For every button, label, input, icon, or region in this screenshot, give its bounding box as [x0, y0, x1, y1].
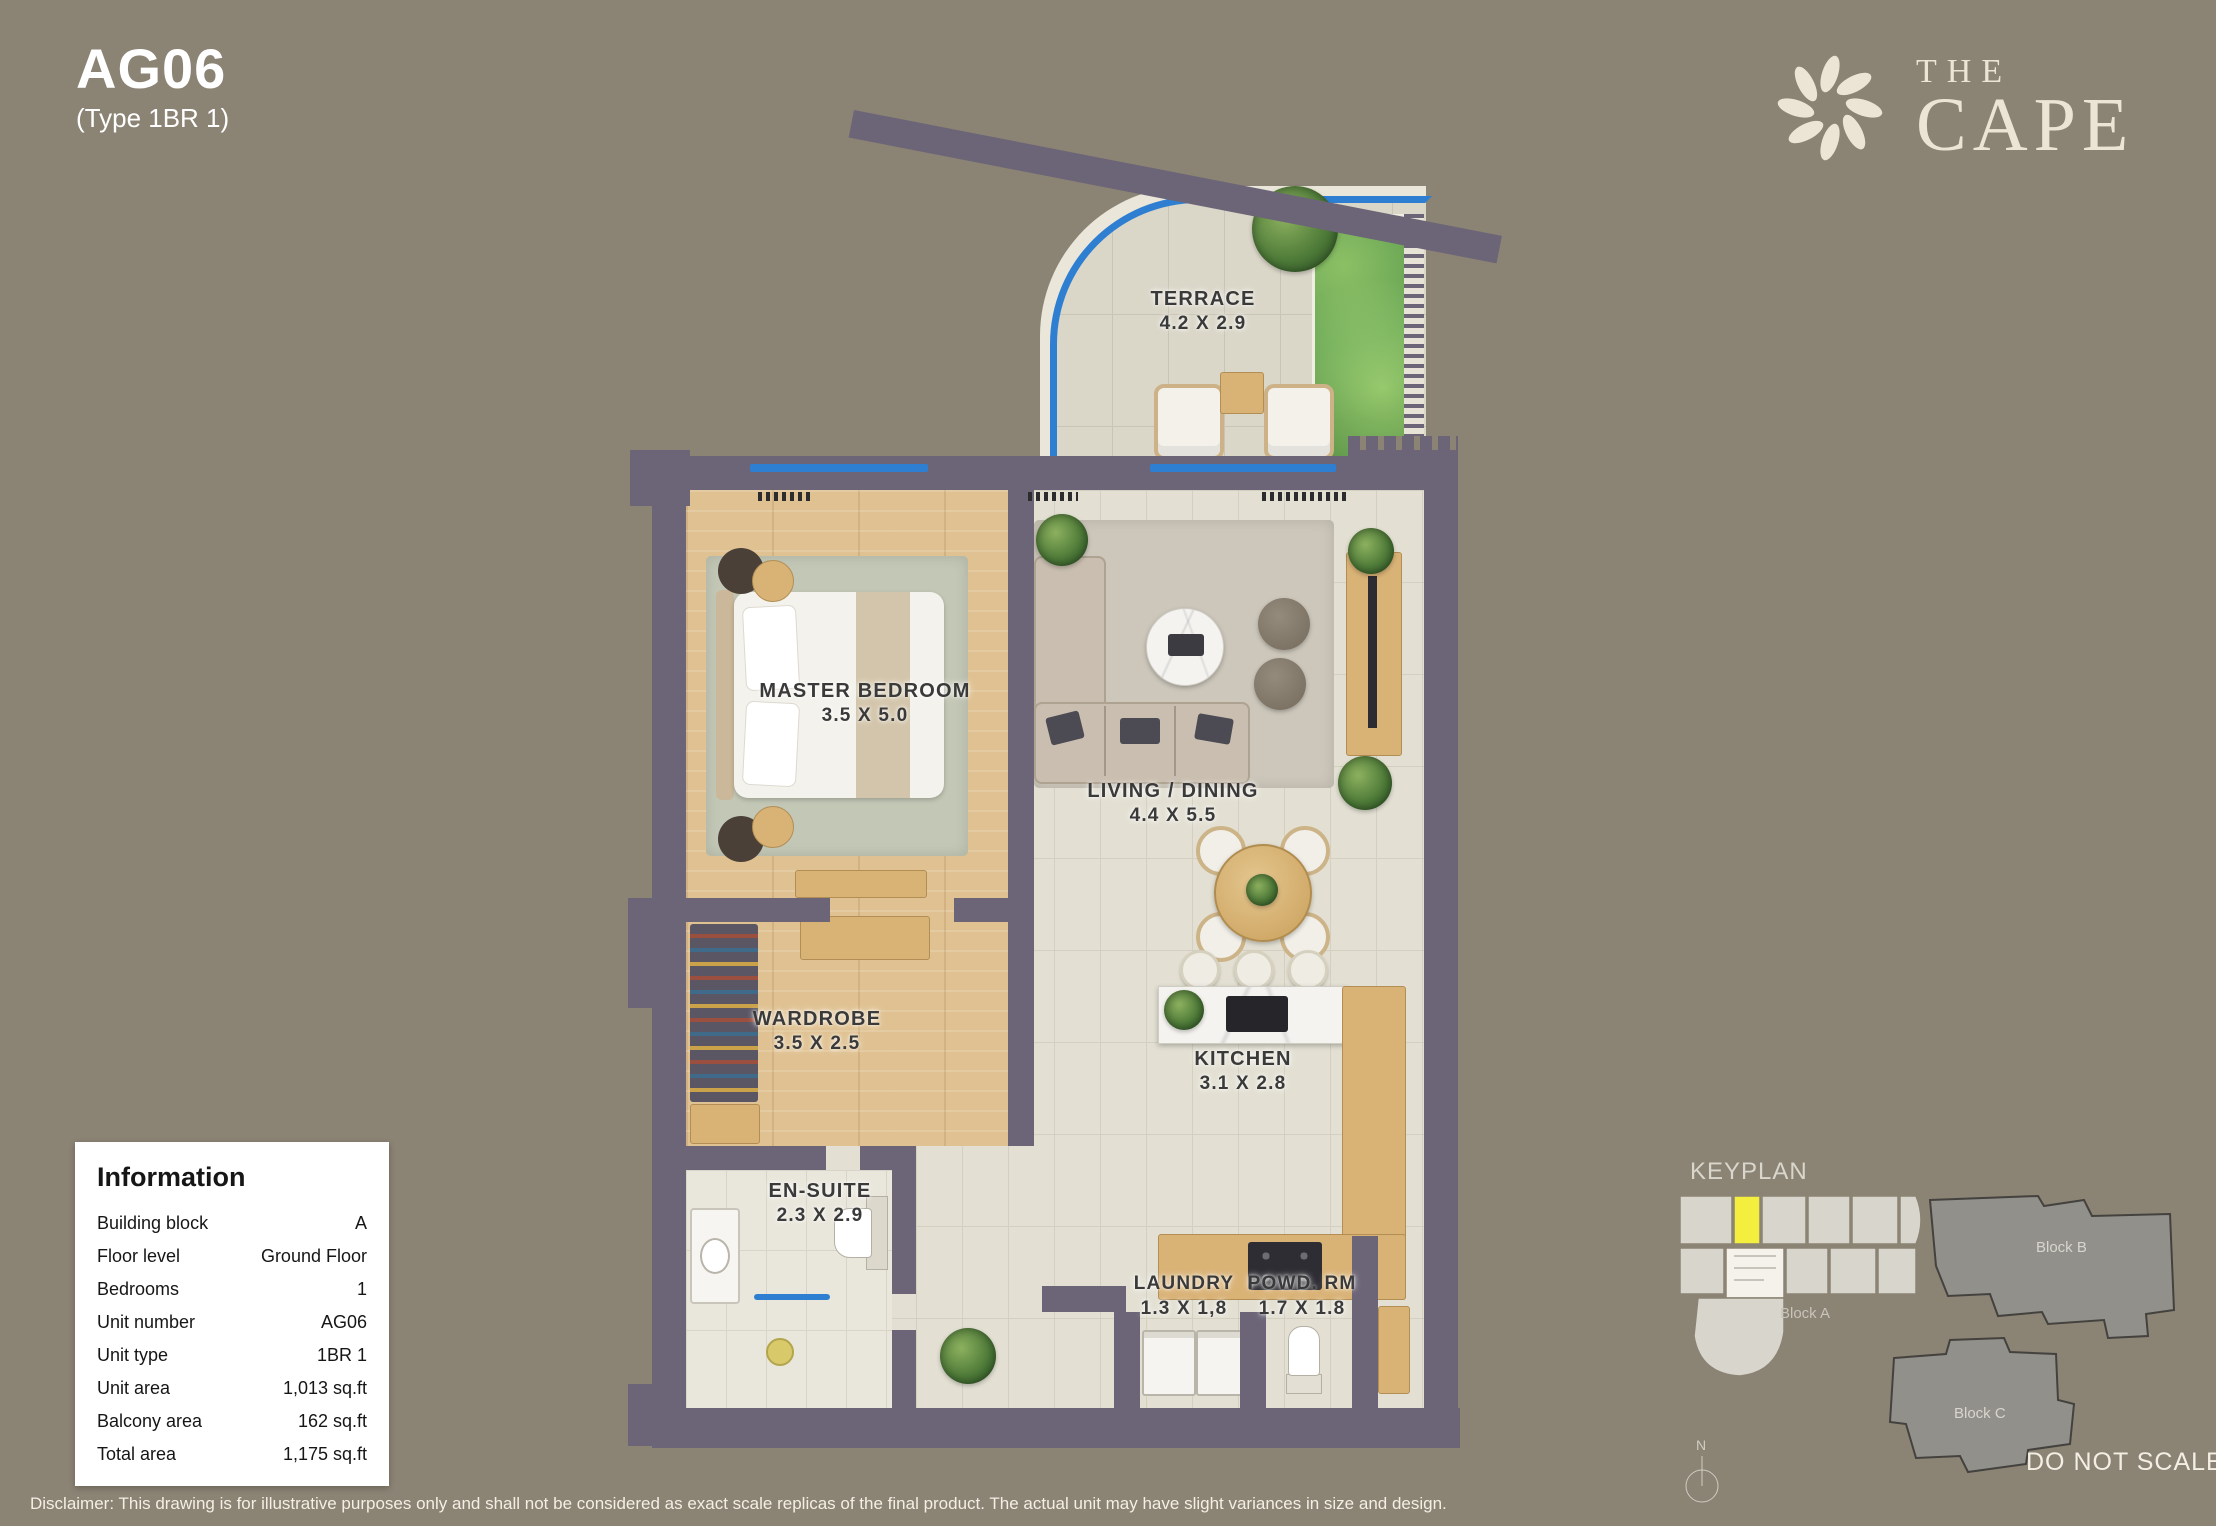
wall-laundry-powder [1240, 1312, 1266, 1408]
info-value: 162 sq.ft [298, 1405, 367, 1438]
room-name: WARDROBE [722, 1006, 912, 1032]
shower-glass [754, 1294, 830, 1300]
disclaimer-text: Disclaimer: This drawing is for illustra… [30, 1494, 1570, 1514]
info-label: Building block [97, 1207, 208, 1240]
info-label: Floor level [97, 1240, 180, 1273]
shower-head [766, 1338, 794, 1366]
room-dims: 3.1 X 2.8 [1148, 1072, 1338, 1097]
wall-bottom [652, 1408, 1460, 1448]
sofa-chaise [1034, 556, 1106, 716]
wall-ensuite-top [860, 1146, 916, 1170]
room-label-master-bedroom: MASTER BEDROOM 3.5 X 5.0 [750, 678, 980, 729]
highlighted-unit [1734, 1196, 1760, 1244]
wall-powder-right [1352, 1236, 1378, 1408]
ottoman [1254, 658, 1306, 710]
north-compass [1686, 1456, 1718, 1502]
hallway-plant [940, 1328, 996, 1384]
console-plant [1348, 528, 1394, 574]
info-row-balcony-area: Balcony area 162 sq.ft [97, 1405, 367, 1438]
bedroom-window [750, 464, 928, 472]
room-dims: 3.5 X 5.0 [750, 704, 980, 729]
wall-top [652, 456, 1458, 490]
room-dims: 4.4 X 5.5 [1058, 804, 1288, 829]
ottoman [1258, 598, 1310, 650]
ac-vent [758, 492, 814, 501]
wall-laundry-left [1114, 1312, 1140, 1408]
info-row-building-block: Building block A [97, 1207, 367, 1240]
wall-ensuite-top [686, 1146, 826, 1170]
bar-stool [1234, 950, 1274, 990]
room-label-ensuite: EN-SUITE 2.3 X 2.9 [730, 1178, 910, 1229]
info-value: 1BR 1 [317, 1339, 367, 1372]
compass-n-label: N [1696, 1437, 1706, 1453]
block-a-label: Block A [1780, 1305, 1830, 1322]
living-plant [1036, 514, 1088, 566]
title-block: AG06 (Type 1BR 1) [76, 40, 229, 134]
washing-machine [1142, 1330, 1196, 1396]
living-plant [1338, 756, 1392, 810]
room-dims: 1.7 X 1.8 [1222, 1297, 1382, 1322]
terrace-side-table [1220, 372, 1264, 414]
bar-stool [1288, 950, 1328, 990]
room-dims: 3.5 X 2.5 [722, 1032, 912, 1057]
info-value: AG06 [321, 1306, 367, 1339]
wall-bedroom-wardrobe [954, 898, 1008, 922]
room-name: MASTER BEDROOM [750, 678, 980, 704]
block-b-label: Block B [2036, 1239, 2087, 1256]
bedroom-dresser [795, 870, 927, 898]
keyplan: KEYPLAN Block A [1668, 1140, 2208, 1512]
powder-toilet [1288, 1326, 1320, 1376]
sofa-cushion-line [1104, 706, 1106, 776]
info-label: Unit number [97, 1306, 195, 1339]
info-value: 1,175 sq.ft [283, 1438, 367, 1471]
wall-bedroom-living [1008, 488, 1034, 908]
powder-shelf [1378, 1306, 1410, 1394]
unit-code: AG06 [76, 40, 229, 99]
info-row-floor-level: Floor level Ground Floor [97, 1240, 367, 1273]
info-row-total-area: Total area 1,175 sq.ft [97, 1438, 367, 1471]
info-label: Bedrooms [97, 1273, 179, 1306]
logo-word-cape: CAPE [1916, 89, 2134, 161]
unit-type: (Type 1BR 1) [76, 103, 229, 134]
brand-logo: THE CAPE [1770, 48, 2134, 168]
wall-wardrobe-right [1008, 898, 1034, 1146]
room-name: TERRACE [1108, 286, 1298, 312]
info-value: A [355, 1207, 367, 1240]
wall-bedroom-wardrobe [686, 898, 830, 922]
block-c-label: Block C [1954, 1405, 2006, 1422]
info-row-unit-type: Unit type 1BR 1 [97, 1339, 367, 1372]
ac-vent [1262, 492, 1346, 501]
room-dims: 4.2 X 2.9 [1108, 312, 1298, 337]
wall-right [1424, 460, 1458, 1448]
information-panel: Information Building block A Floor level… [75, 1142, 389, 1486]
kitchen-sink [1226, 996, 1288, 1032]
wall-ensuite-right [892, 1330, 916, 1408]
room-label-kitchen: KITCHEN 3.1 X 2.8 [1148, 1046, 1338, 1097]
flower-starburst-icon [1770, 48, 1890, 168]
floorplan-page: AG06 (Type 1BR 1) THE CAPE [0, 0, 2216, 1520]
terrace-louver [1404, 214, 1424, 458]
info-row-unit-area: Unit area 1,013 sq.ft [97, 1372, 367, 1405]
room-dims: 2.3 X 2.9 [730, 1204, 910, 1229]
keyplan-title: KEYPLAN [1690, 1158, 1808, 1186]
wardrobe-dresser [800, 916, 930, 960]
bar-stool [1180, 950, 1220, 990]
info-label: Total area [97, 1438, 176, 1471]
ac-vent [1028, 492, 1078, 501]
logo-text: THE CAPE [1916, 55, 2134, 161]
info-label: Unit type [97, 1339, 168, 1372]
terrace-chair [1154, 384, 1224, 460]
info-row-unit-number: Unit number AG06 [97, 1306, 367, 1339]
bedside-table [752, 806, 794, 848]
info-value: 1 [357, 1273, 367, 1306]
sofa-pillow [1120, 718, 1160, 744]
room-label-powder-room: POWD. RM 1.7 X 1.8 [1222, 1272, 1382, 1321]
dining-centerpiece-plant [1246, 874, 1278, 906]
tv-screen [1368, 576, 1377, 728]
wall-segment [628, 898, 686, 1008]
room-name: KITCHEN [1148, 1046, 1338, 1072]
block-b-shape [1930, 1196, 2174, 1338]
living-window [1150, 464, 1336, 472]
info-label: Balcony area [97, 1405, 202, 1438]
powder-toilet-tank [1286, 1374, 1322, 1394]
terrace-chair [1264, 384, 1334, 460]
ensuite-sink [700, 1238, 730, 1274]
island-plant [1164, 990, 1204, 1030]
info-value: 1,013 sq.ft [283, 1372, 367, 1405]
room-label-wardrobe: WARDROBE 3.5 X 2.5 [722, 1006, 912, 1057]
room-name: LIVING / DINING [1058, 778, 1288, 804]
wardrobe-cabinet [690, 1104, 760, 1144]
info-label: Unit area [97, 1372, 170, 1405]
room-name: EN-SUITE [730, 1178, 910, 1204]
information-title: Information [97, 1162, 367, 1193]
bedside-table [752, 560, 794, 602]
do-not-scale-label: DO NOT SCALE [2026, 1448, 2216, 1477]
info-value: Ground Floor [261, 1240, 367, 1273]
wall-crenellated [1348, 436, 1458, 490]
coffee-table-tray [1168, 634, 1204, 656]
room-label-living-dining: LIVING / DINING 4.4 X 5.5 [1058, 778, 1288, 829]
info-row-bedrooms: Bedrooms 1 [97, 1273, 367, 1306]
sofa-cushion-line [1174, 706, 1176, 776]
bed-headboard [716, 590, 734, 800]
room-name: POWD. RM [1222, 1272, 1382, 1297]
room-label-terrace: TERRACE 4.2 X 2.9 [1108, 286, 1298, 337]
